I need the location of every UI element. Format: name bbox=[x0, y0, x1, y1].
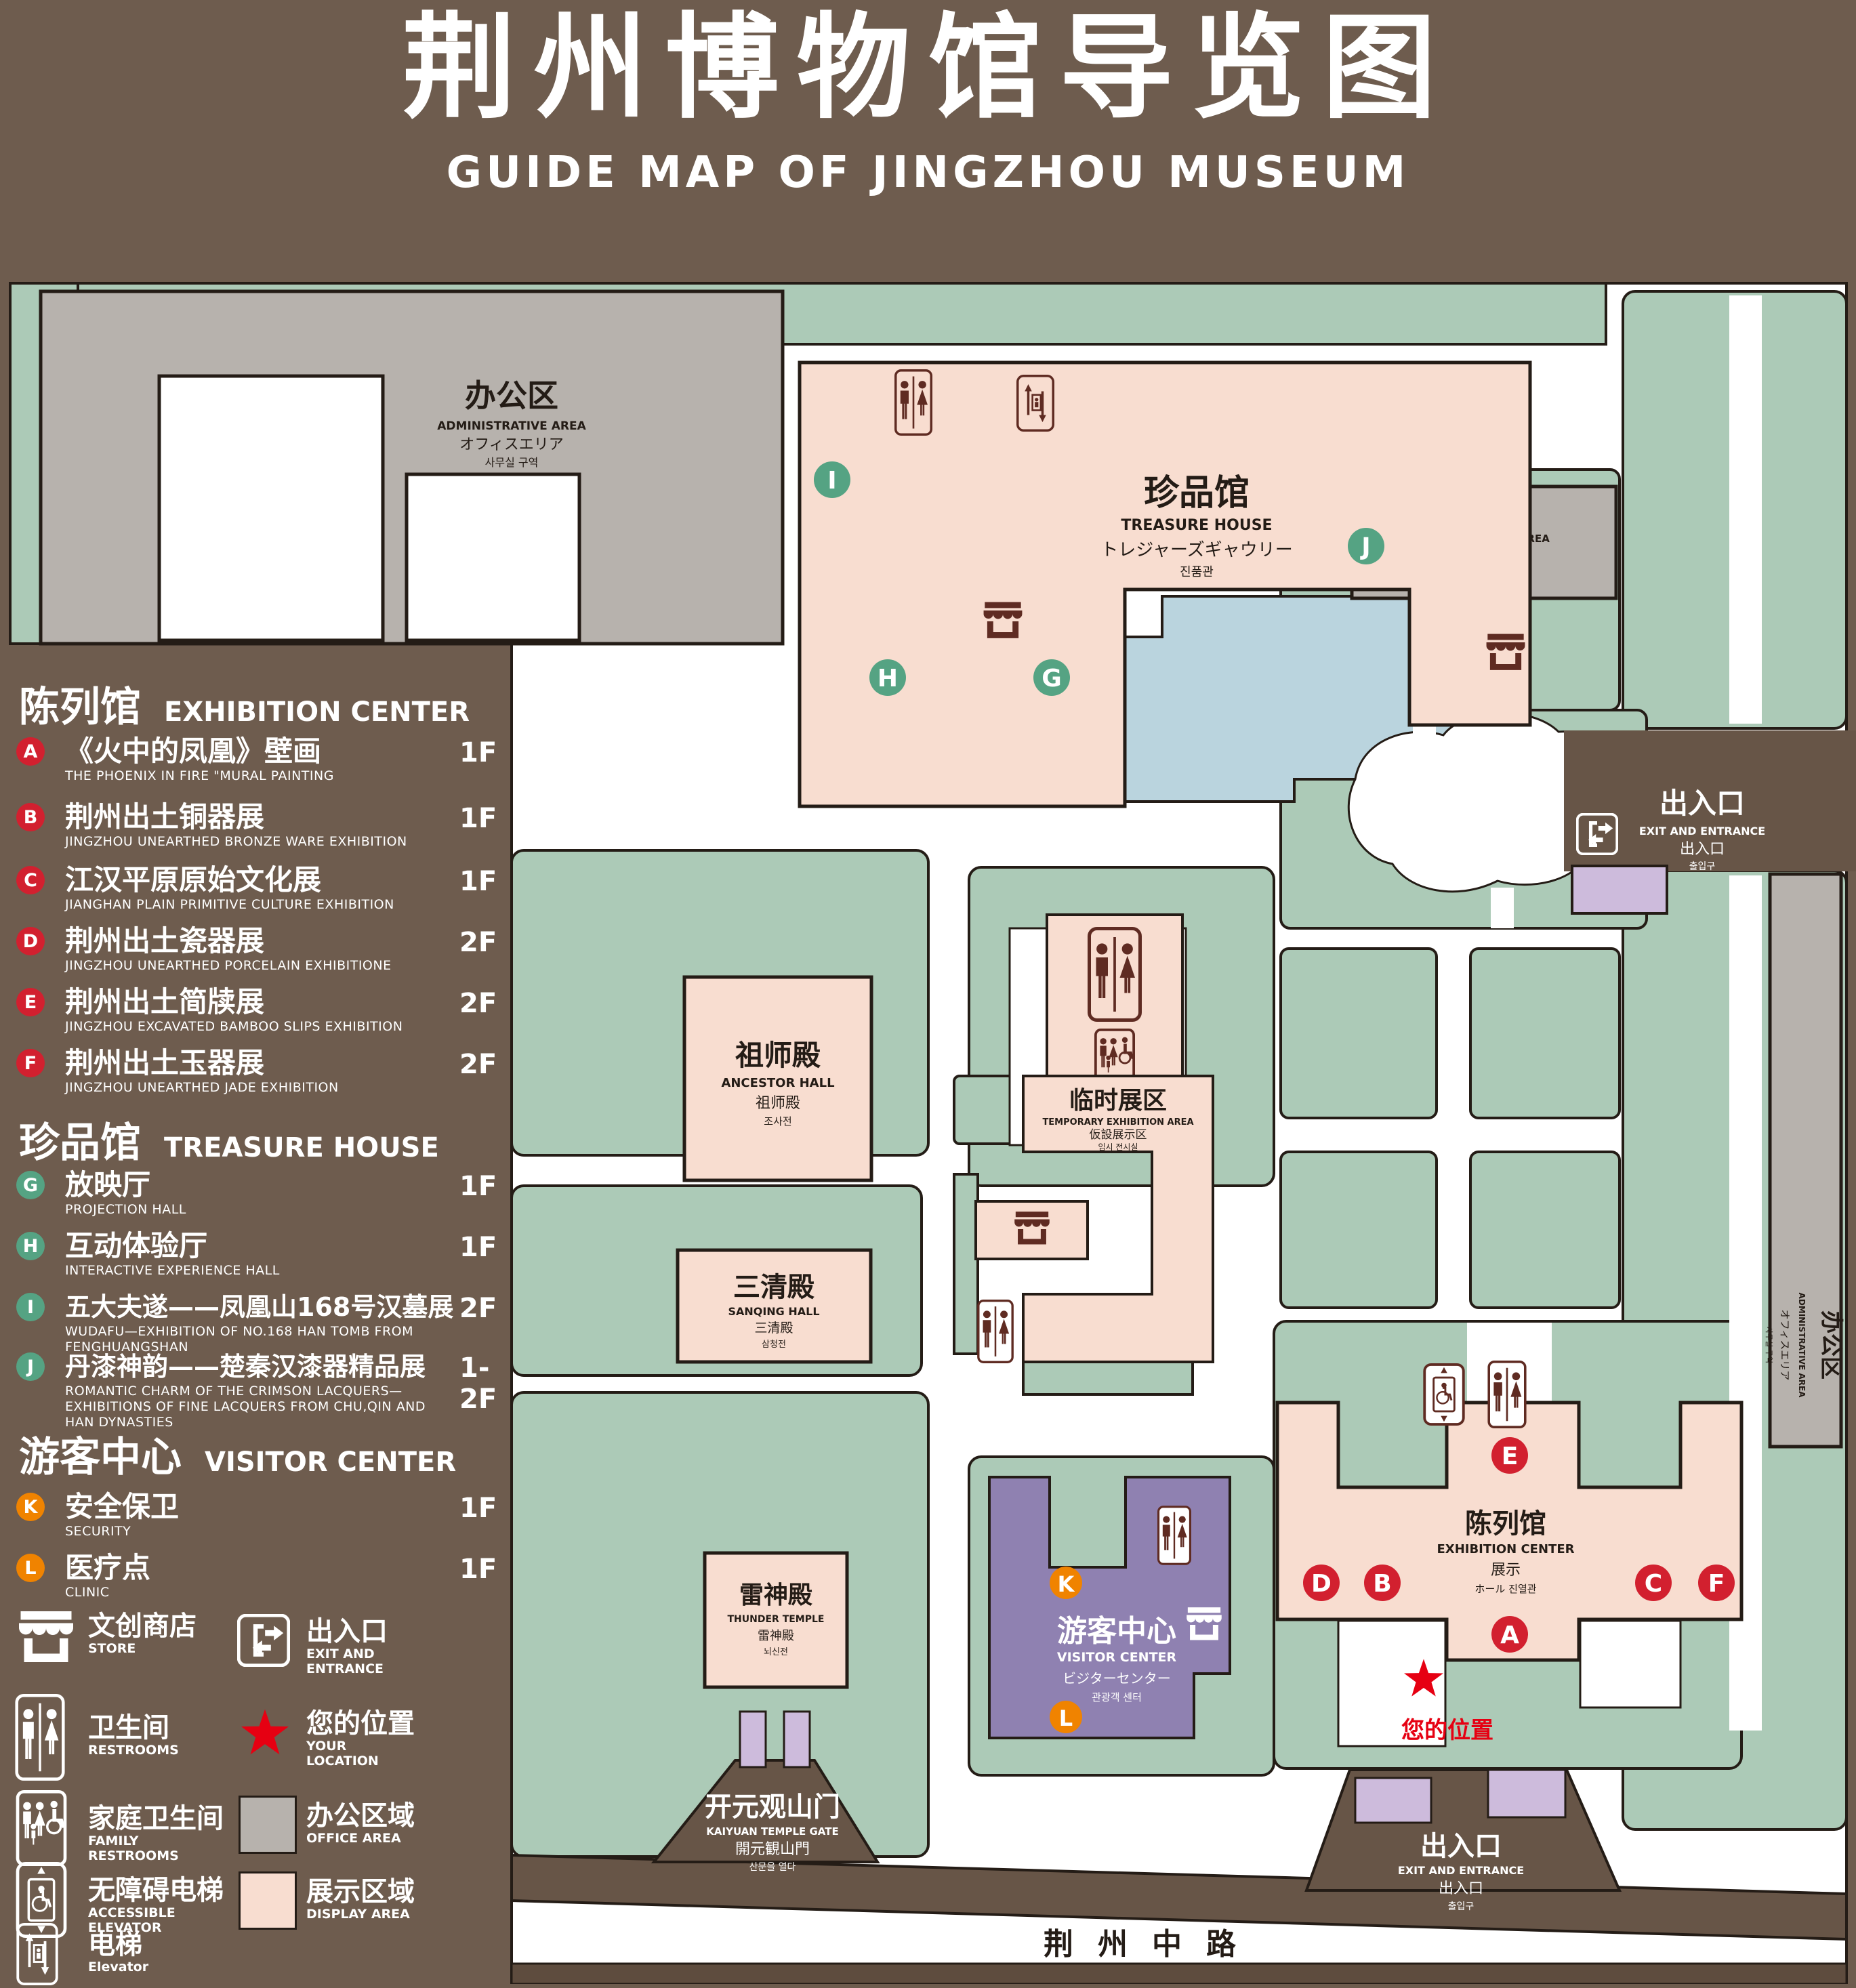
badge-i: I bbox=[814, 461, 850, 498]
exhibition-cn: 陈列馆 bbox=[1465, 1508, 1546, 1539]
green-temp-c bbox=[1023, 1361, 1193, 1394]
ancestor-jp: 祖师殿 bbox=[756, 1095, 800, 1112]
building-temp-store bbox=[976, 1201, 1088, 1259]
gate-ne-purple bbox=[1572, 866, 1667, 913]
symbol-cn: 电梯 bbox=[88, 1930, 148, 1960]
section-title-en: EXHIBITION CENTER bbox=[164, 697, 470, 728]
symbol-en: YOUR LOCATION bbox=[306, 1739, 415, 1768]
item-floor: 1F bbox=[459, 866, 497, 897]
legend-store: 文创商店 STORE bbox=[15, 1611, 77, 1668]
symbol-cn: 办公区域 bbox=[306, 1801, 415, 1831]
svg-text:H: H bbox=[878, 665, 898, 692]
symbol-en: STORE bbox=[88, 1641, 197, 1656]
green-grid-4 bbox=[1470, 1152, 1620, 1308]
legend-item-c: C 江汉平原原始文化展 JIANGHAN PLAIN PRIMITIVE CUL… bbox=[0, 865, 515, 930]
badge-a: A bbox=[1491, 1616, 1528, 1653]
badge-k: K bbox=[1050, 1567, 1082, 1599]
item-cn: 互动体验厅 bbox=[65, 1230, 455, 1262]
exit-icon bbox=[237, 1614, 290, 1667]
badge-h: H bbox=[869, 659, 906, 696]
item-cn: 放映厅 bbox=[65, 1169, 455, 1201]
badge-f: F bbox=[1698, 1565, 1735, 1601]
gate-se-purple-right bbox=[1488, 1770, 1565, 1817]
symbol-en: DISPLAY AREA bbox=[306, 1907, 415, 1922]
accessible-elevator-icon bbox=[1424, 1365, 1464, 1424]
admin-se-kr: 사무실 구역 bbox=[1765, 1327, 1773, 1363]
section-title-cn: 珍品馆 bbox=[19, 1119, 141, 1167]
badge-h: H bbox=[16, 1232, 45, 1260]
badge-g: G bbox=[1033, 659, 1070, 696]
sanqing-kr: 삼청전 bbox=[762, 1340, 786, 1350]
gate-south-kr: 산문을 열다 bbox=[749, 1862, 796, 1873]
admin-se-jp: オフィスエリア bbox=[1779, 1310, 1791, 1381]
symbol-cn: 文创商店 bbox=[88, 1611, 197, 1641]
item-cn: 江汉平原原始文化展 bbox=[65, 865, 455, 896]
symbol-en: RESTROOMS bbox=[88, 1743, 179, 1758]
legend-item-a: A 《火中的凤凰》壁画 THE PHOENIX IN FIRE "MURAL P… bbox=[0, 736, 515, 801]
item-floor: 1F bbox=[459, 1232, 497, 1263]
svg-text:B: B bbox=[1373, 1570, 1391, 1598]
legend-restrooms: 卫生间 RESTROOMS bbox=[15, 1694, 65, 1783]
legend-item-j: J 丹漆神韵——楚秦汉漆器精品展 ROMANTIC CHARM OF THE C… bbox=[0, 1351, 515, 1416]
visitor-jp: ビジターセンター bbox=[1063, 1670, 1171, 1686]
gate-se-purple-left bbox=[1355, 1778, 1431, 1823]
item-floor: 2F bbox=[459, 927, 497, 958]
ancestor-en: ANCESTOR HALL bbox=[721, 1076, 834, 1090]
section-title-cn: 游客中心 bbox=[19, 1434, 182, 1481]
symbol-en: EXIT AND ENTRANCE bbox=[306, 1647, 388, 1676]
temp-en: TEMPORARY EXHIBITION AREA bbox=[1042, 1117, 1193, 1127]
badge-j: J bbox=[1348, 528, 1384, 564]
bottom-strip bbox=[512, 1964, 1847, 1984]
ancestor-kr: 조사전 bbox=[764, 1115, 791, 1127]
court-exhibition-right bbox=[1580, 1621, 1680, 1707]
item-floor: 1F bbox=[459, 803, 497, 834]
visitor-kr: 관광객 센터 bbox=[1092, 1691, 1142, 1703]
section-title-en: VISITOR CENTER bbox=[205, 1447, 456, 1478]
your-location-label: 您的位置 bbox=[1401, 1717, 1493, 1744]
item-cn: 荆州出土瓷器展 bbox=[65, 926, 455, 957]
garden-channel-bottom bbox=[1491, 888, 1514, 928]
gate-ne-cn: 出入口 bbox=[1659, 787, 1745, 820]
badge-j: J bbox=[16, 1352, 45, 1381]
badge-k: K bbox=[16, 1493, 45, 1521]
legend-item-l: L 医疗点 CLINIC 1F bbox=[0, 1552, 515, 1617]
elevator-icon bbox=[15, 1923, 60, 1985]
gate-ne-en: EXIT AND ENTRANCE bbox=[1639, 825, 1765, 837]
item-en: PROJECTION HALL bbox=[65, 1202, 455, 1218]
thunder-cn: 雷神殿 bbox=[739, 1581, 812, 1609]
path-ne-1 bbox=[1729, 295, 1762, 724]
exhibition-kr: ホール 진열관 bbox=[1475, 1583, 1536, 1595]
svg-text:D: D bbox=[1311, 1570, 1332, 1598]
section-title-en: TREASURE HOUSE bbox=[164, 1132, 439, 1163]
legend-section-visitor-center: 游客中心VISITOR CENTER bbox=[19, 1424, 456, 1483]
legend-your-location: 您的位置 YOUR LOCATION bbox=[241, 1709, 289, 1758]
badge-c: C bbox=[16, 866, 45, 894]
item-en: ROMANTIC CHARM OF THE CRIMSON LACQUERS—E… bbox=[65, 1384, 455, 1430]
legend-item-b: B 荆州出土铜器展 JINGZHOU UNEARTHED BRONZE WARE… bbox=[0, 802, 515, 867]
item-en: SECURITY bbox=[65, 1524, 455, 1539]
sanqing-cn: 三清殿 bbox=[733, 1272, 814, 1303]
item-floor: 2F bbox=[459, 1293, 497, 1324]
symbol-en: OFFICE AREA bbox=[306, 1831, 415, 1846]
badge-d: D bbox=[16, 927, 45, 955]
restroom-icon bbox=[1489, 1362, 1525, 1427]
svg-text:C: C bbox=[1645, 1570, 1662, 1598]
green-temp-b bbox=[954, 1174, 978, 1354]
symbol-cn: 您的位置 bbox=[306, 1709, 415, 1739]
item-cn: 医疗点 bbox=[65, 1552, 455, 1583]
temp-cn: 临时展区 bbox=[1069, 1087, 1167, 1115]
badge-c: C bbox=[1635, 1565, 1672, 1601]
sanqing-en: SANQING HALL bbox=[728, 1305, 819, 1318]
svg-text:G: G bbox=[1042, 665, 1062, 692]
display-area-swatch bbox=[239, 1871, 297, 1930]
gate-ne-cn2: 出入口 bbox=[1680, 841, 1725, 858]
restroom-icon bbox=[978, 1301, 1012, 1363]
restroom-icon bbox=[15, 1694, 65, 1781]
legend-item-e: E 荆州出土简牍展 JINGZHOU EXCAVATED BAMBOO SLIP… bbox=[0, 987, 515, 1052]
symbol-cn: 无障碍电梯 bbox=[88, 1876, 224, 1905]
item-cn: 《火中的凤凰》壁画 bbox=[65, 736, 455, 767]
symbol-cn: 出入口 bbox=[306, 1617, 388, 1647]
legend-section-treasure-house: 珍品馆TREASURE HOUSE bbox=[19, 1110, 439, 1169]
legend-item-f: F 荆州出土玉器展 JINGZHOU UNEARTHED JADE EXHIBI… bbox=[0, 1048, 515, 1113]
symbol-cn: 卫生间 bbox=[88, 1713, 179, 1743]
item-en: JIANGHAN PLAIN PRIMITIVE CULTURE EXHIBIT… bbox=[65, 897, 455, 913]
item-en: JINGZHOU UNEARTHED PORCELAIN EXHIBITIONE bbox=[65, 958, 455, 974]
gate-south-cn: 开元观山门 bbox=[705, 1792, 840, 1823]
badge-e: E bbox=[16, 988, 45, 1016]
item-cn: 荆州出土铜器展 bbox=[65, 802, 455, 833]
gate-se-kr: 출입구 bbox=[1448, 1901, 1475, 1912]
family-restroom-icon bbox=[15, 1790, 68, 1866]
road-label: 荆州中路 bbox=[1044, 1927, 1260, 1962]
treasure-kr: 진품관 bbox=[1180, 565, 1214, 579]
gate-se-cn: 出入口 bbox=[1420, 1831, 1502, 1862]
legend-section-exhibition-center: 陈列馆EXHIBITION CENTER bbox=[19, 674, 470, 733]
svg-text:J: J bbox=[1359, 533, 1370, 561]
legend-item-k: K 安全保卫 SECURITY 1F bbox=[0, 1491, 515, 1556]
symbol-en: FAMILY RESTROOMS bbox=[88, 1834, 224, 1863]
section-title-cn: 陈列馆 bbox=[19, 684, 141, 731]
gate-south-pillar-left bbox=[740, 1712, 766, 1767]
restroom-icon bbox=[1159, 1507, 1191, 1564]
svg-text:A: A bbox=[1500, 1621, 1519, 1649]
legend-item-d: D 荆州出土瓷器展 JINGZHOU UNEARTHED PORCELAIN E… bbox=[0, 926, 515, 991]
store-icon bbox=[15, 1611, 77, 1665]
item-en: JINGZHOU UNEARTHED BRONZE WARE EXHIBITIO… bbox=[65, 834, 455, 850]
item-cn: 荆州出土玉器展 bbox=[65, 1048, 455, 1079]
badge-l: L bbox=[16, 1554, 45, 1582]
temp-kr: 임시 전시실 bbox=[1098, 1142, 1138, 1152]
badge-f: F bbox=[16, 1049, 45, 1077]
badge-l: L bbox=[1050, 1701, 1082, 1733]
legend-exit: 出入口 EXIT AND ENTRANCE bbox=[237, 1614, 290, 1670]
sanqing-jp: 三清殿 bbox=[754, 1321, 793, 1335]
gate-south-pillar-right bbox=[784, 1712, 810, 1767]
badge-i: I bbox=[16, 1293, 45, 1321]
badge-b: B bbox=[16, 803, 45, 831]
item-en: JINGZHOU UNEARTHED JADE EXHIBITION bbox=[65, 1080, 455, 1096]
legend-elevator: 电梯 Elevator bbox=[15, 1923, 60, 1988]
item-en: JINGZHOU EXCAVATED BAMBOO SLIPS EXHIBITI… bbox=[65, 1019, 455, 1035]
exhibition-en: EXHIBITION CENTER bbox=[1437, 1542, 1575, 1556]
visitor-cn: 游客中心 bbox=[1057, 1614, 1176, 1649]
treasure-cn: 珍品馆 bbox=[1144, 473, 1250, 514]
item-floor: 2F bbox=[459, 988, 497, 1019]
badge-b: B bbox=[1364, 1565, 1401, 1601]
item-en: INTERACTIVE EXPERIENCE HALL bbox=[65, 1263, 455, 1279]
symbol-en: Elevator bbox=[88, 1960, 148, 1974]
badge-e: E bbox=[1491, 1437, 1528, 1474]
admin-se-en: ADMINISTRATIVE AREA bbox=[1797, 1293, 1807, 1399]
svg-text:E: E bbox=[1502, 1443, 1519, 1470]
item-en: CLINIC bbox=[65, 1585, 455, 1600]
temp-jp: 仮設展示区 bbox=[1090, 1128, 1147, 1142]
legend-display-area: 展示区域 DISPLAY AREA bbox=[239, 1871, 297, 1930]
item-floor: 2F bbox=[459, 1049, 497, 1080]
green-grid-2 bbox=[1470, 949, 1620, 1118]
gate-south-jp: 開元観山門 bbox=[735, 1841, 810, 1858]
gate-ne-kr: 출입구 bbox=[1689, 861, 1716, 872]
green-grid-3 bbox=[1281, 1152, 1437, 1308]
badge-a: A bbox=[16, 737, 45, 766]
legend-item-i: I 五大夫遂——凤凰山168号汉墓展 WUDAFU—EXHIBITION OF … bbox=[0, 1291, 515, 1357]
thunder-kr: 뇌신전 bbox=[764, 1647, 788, 1657]
item-floor: 1-2F bbox=[459, 1352, 515, 1415]
visitor-en: VISITOR CENTER bbox=[1057, 1650, 1177, 1665]
svg-text:L: L bbox=[1059, 1705, 1073, 1731]
legend-office-area: 办公区域 OFFICE AREA bbox=[239, 1796, 297, 1854]
symbol-cn: 家庭卫生间 bbox=[88, 1804, 224, 1834]
admin-se-cn: 办公区 bbox=[1817, 1310, 1844, 1380]
legend-panel: 陈列馆EXHIBITION CENTER A 《火中的凤凰》壁画 THE PHO… bbox=[0, 0, 515, 1984]
item-floor: 1F bbox=[459, 737, 497, 768]
item-cn: 五大夫遂——凤凰山168号汉墓展 bbox=[65, 1291, 455, 1323]
gate-se-cn2: 出入口 bbox=[1439, 1880, 1483, 1897]
your-location-star bbox=[241, 1709, 289, 1755]
item-en: THE PHOENIX IN FIRE "MURAL PAINTING bbox=[65, 768, 455, 784]
gate-south-en: KAIYUAN TEMPLE GATE bbox=[706, 1825, 838, 1838]
item-floor: 1F bbox=[459, 1171, 497, 1202]
item-cn: 安全保卫 bbox=[65, 1491, 455, 1523]
svg-text:K: K bbox=[1058, 1571, 1075, 1597]
badge-d: D bbox=[1303, 1565, 1340, 1601]
treasure-en: TREASURE HOUSE bbox=[1121, 517, 1272, 534]
office-area-swatch bbox=[239, 1796, 297, 1854]
item-floor: 1F bbox=[459, 1493, 497, 1524]
ancestor-cn: 祖师殿 bbox=[735, 1039, 821, 1072]
legend-item-g: G 放映厅 PROJECTION HALL 1F bbox=[0, 1169, 515, 1235]
green-grid-1 bbox=[1281, 949, 1437, 1118]
treasure-jp: トレジャーズギャウリー bbox=[1100, 540, 1292, 560]
gate-se-en: EXIT AND ENTRANCE bbox=[1398, 1864, 1524, 1877]
svg-text:I: I bbox=[827, 467, 836, 495]
svg-text:F: F bbox=[1708, 1570, 1725, 1598]
exhibition-jp: 展示 bbox=[1491, 1562, 1521, 1579]
thunder-en: THUNDER TEMPLE bbox=[728, 1614, 825, 1625]
thunder-jp: 雷神殿 bbox=[758, 1629, 794, 1643]
item-cn: 丹漆神韵——楚秦汉漆器精品展 bbox=[65, 1351, 455, 1382]
symbol-cn: 展示区域 bbox=[306, 1877, 415, 1907]
badge-g: G bbox=[16, 1171, 45, 1199]
item-cn: 荆州出土简牍展 bbox=[65, 987, 455, 1018]
legend-family-restrooms: 家庭卫生间 FAMILY RESTROOMS bbox=[15, 1790, 68, 1869]
item-floor: 1F bbox=[459, 1554, 497, 1585]
legend-item-h: H 互动体验厅 INTERACTIVE EXPERIENCE HALL 1F bbox=[0, 1230, 515, 1296]
